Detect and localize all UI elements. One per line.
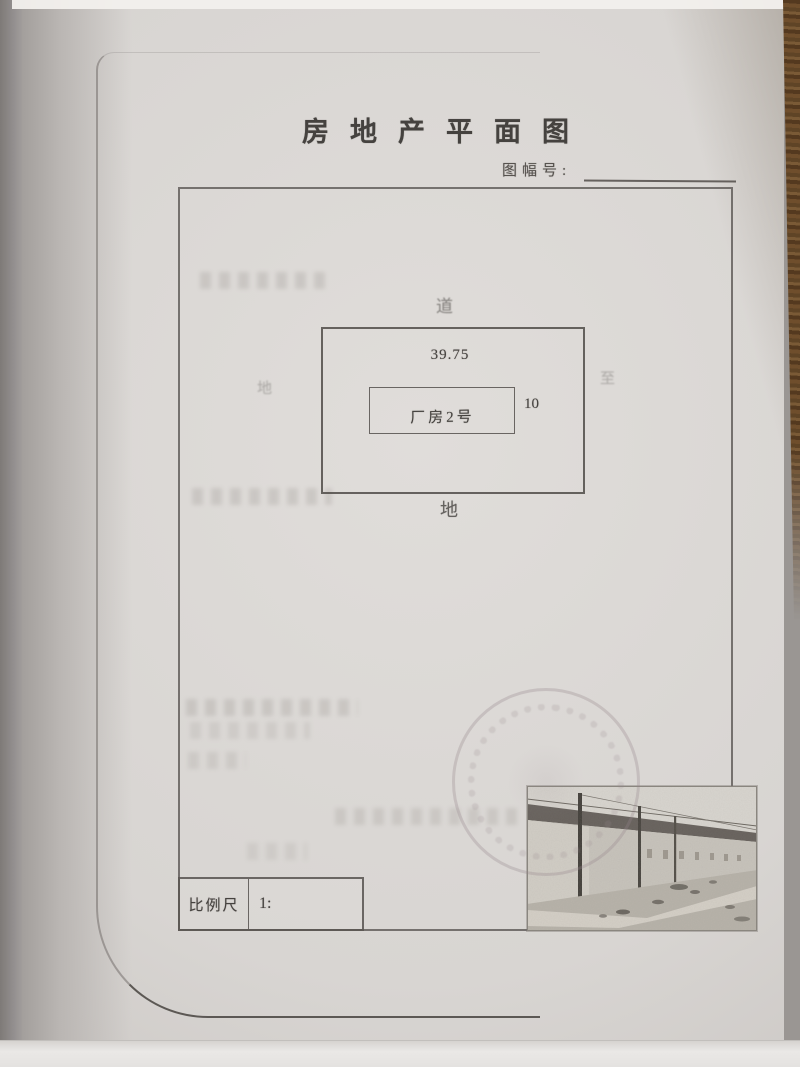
- scanned-document-photo: 房地产平面图 图幅号: 道 39.75 厂房2号 10 地 地 至 比例尺 1:: [0, 0, 800, 1067]
- scale-label: 比例尺: [180, 879, 249, 929]
- dimension-width: 39.75: [408, 347, 492, 364]
- sheet-number-label: 图幅号:: [502, 159, 571, 180]
- building-label: 厂房2号: [409, 393, 474, 427]
- plan-label-land-right: 至: [600, 367, 615, 388]
- plan-label-land-left: 地: [257, 377, 272, 398]
- plan-label-road-top: 道: [436, 292, 453, 317]
- seal-smudge: [507, 743, 585, 821]
- document-title: 房地产平面图: [302, 110, 632, 149]
- desk-surface-bottom: [0, 1040, 800, 1067]
- plan-label-land-bottom: 地: [440, 496, 458, 522]
- official-seal-stamp: [452, 688, 640, 876]
- dimension-depth: 10: [524, 396, 539, 413]
- building-outline: 厂房2号: [369, 387, 515, 434]
- scale-table: 比例尺 1:: [178, 877, 364, 931]
- scale-value: 1:: [249, 879, 362, 929]
- top-sheet-edge: [12, 0, 787, 9]
